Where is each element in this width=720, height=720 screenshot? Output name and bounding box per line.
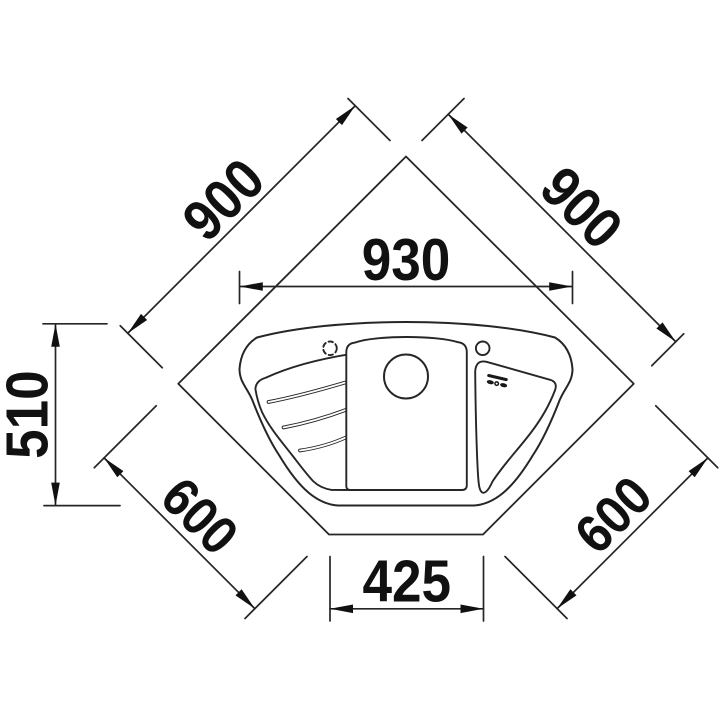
svg-text:425: 425 [363,548,452,614]
svg-text:930: 930 [362,227,451,293]
svg-text:510: 510 [0,370,60,459]
